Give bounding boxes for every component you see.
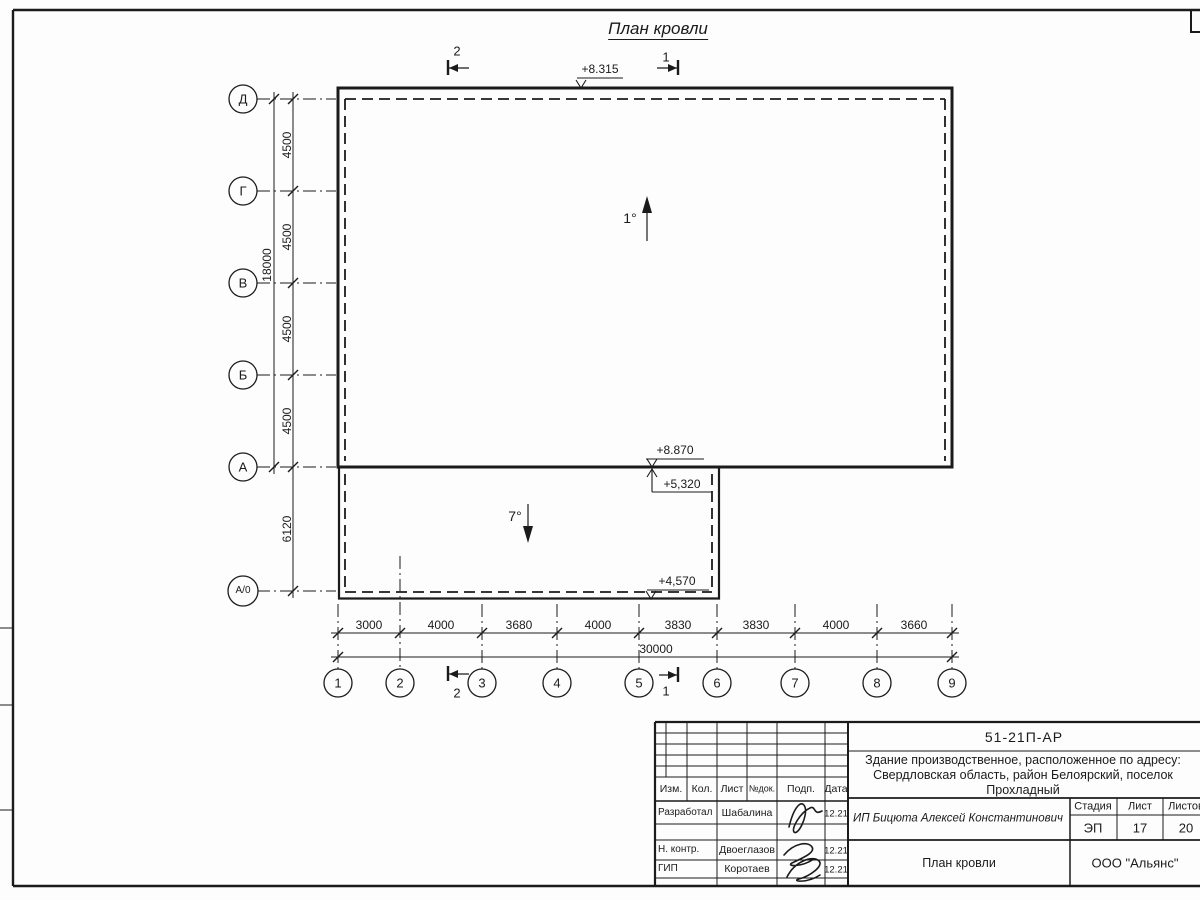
row-axis-label: А/0 bbox=[235, 586, 250, 596]
col-dimension: 4000 bbox=[428, 619, 455, 631]
date-nkontr: 12.21 bbox=[824, 846, 848, 856]
row-dimension-total: 18000 bbox=[261, 248, 273, 281]
col-axis-label: 9 bbox=[948, 677, 955, 690]
date-razrabotal: 12.21 bbox=[824, 809, 848, 819]
elevation-main-roof-edge: +8.870 bbox=[656, 444, 693, 456]
role-nkontr: Н. контр. bbox=[658, 845, 699, 855]
drawing-sheet: План кровли Д Г В Б А А/0 1 2 3 4 5 6 7 … bbox=[0, 0, 1200, 900]
row-dimension: 4500 bbox=[281, 224, 293, 251]
col-dimension-total: 30000 bbox=[639, 643, 672, 655]
client-name: ИП Бицюта Алексей Константинович bbox=[853, 813, 1063, 825]
project-description-line1: Здание производственное, расположенное п… bbox=[865, 754, 1181, 767]
stage-label: Стадия bbox=[1074, 802, 1112, 813]
organization-name: ООО "Альянс" bbox=[1092, 857, 1179, 870]
elevation-annex-roof-top: +5,320 bbox=[663, 478, 700, 490]
col-header-podp: Подп. bbox=[787, 784, 815, 795]
col-header-izm: Изм. bbox=[660, 784, 683, 795]
name-nkontr: Двоеглазов bbox=[719, 845, 775, 856]
date-gip: 12.21 bbox=[824, 865, 848, 875]
slope-label-main: 1° bbox=[623, 211, 636, 225]
col-header-kol: Кол. bbox=[692, 784, 713, 795]
sheet-value: 17 bbox=[1133, 822, 1147, 835]
slope-arrow-main bbox=[642, 196, 652, 241]
main-roof-outline bbox=[338, 88, 952, 467]
row-dimension: 4500 bbox=[281, 408, 293, 435]
sheet-label: Лист bbox=[1128, 802, 1152, 813]
row-dimension: 4500 bbox=[281, 316, 293, 343]
col-dimension: 3830 bbox=[665, 619, 692, 631]
col-axis-label: 8 bbox=[873, 677, 880, 690]
left-margin-dividers bbox=[0, 628, 13, 810]
sheets-label: Листов bbox=[1168, 802, 1200, 813]
dimension-ticks bbox=[269, 94, 957, 662]
section-number-1-bottom: 1 bbox=[662, 685, 669, 698]
slope-arrow-annex bbox=[523, 504, 533, 543]
name-razrabotal: Шабалина bbox=[722, 808, 773, 819]
elevation-main-roof: +8.315 bbox=[581, 63, 618, 75]
col-header-data: Дата bbox=[824, 784, 847, 795]
name-gip: Коротаев bbox=[724, 864, 769, 875]
col-axis-label: 2 bbox=[396, 677, 403, 690]
col-axis-label: 6 bbox=[713, 677, 720, 690]
slope-label-annex: 7° bbox=[508, 509, 521, 523]
signature-strokes bbox=[784, 804, 822, 881]
col-dimension: 3830 bbox=[743, 619, 770, 631]
col-dimension: 3000 bbox=[356, 619, 383, 631]
col-axis-label: 4 bbox=[553, 677, 560, 690]
dimension-lines bbox=[274, 92, 959, 657]
signature-razrabotal bbox=[789, 804, 822, 833]
col-dimension: 3660 bbox=[901, 619, 928, 631]
col-axis-label: 7 bbox=[791, 677, 798, 690]
row-axis-label: Б bbox=[239, 369, 248, 382]
elevation-annex-roof-edge: +4,570 bbox=[658, 575, 695, 587]
project-description-line2: Свердловская область, район Белоярский, … bbox=[873, 769, 1173, 782]
section-mark-1-bottom bbox=[659, 667, 678, 682]
doc-code: 51-21П-АР bbox=[985, 730, 1063, 744]
col-axis-label: 1 bbox=[334, 677, 341, 690]
section-mark-2-top bbox=[448, 60, 469, 75]
col-header-ndoc: №док. bbox=[749, 785, 775, 794]
project-description-line3: Прохладный bbox=[986, 784, 1059, 797]
col-header-list: Лист bbox=[721, 784, 744, 795]
signature-gip bbox=[784, 844, 820, 881]
row-axis-label: Г bbox=[239, 185, 246, 198]
col-dimension: 4000 bbox=[585, 619, 612, 631]
axis-lines bbox=[257, 99, 952, 669]
col-axis-label: 5 bbox=[635, 677, 642, 690]
col-dimension: 3680 bbox=[506, 619, 533, 631]
drawing-title: План кровли bbox=[608, 20, 708, 40]
role-gip: ГИП bbox=[658, 864, 678, 874]
row-axis-label: В bbox=[239, 277, 248, 290]
sheet-name: План кровли bbox=[922, 857, 996, 870]
col-dimension: 4000 bbox=[823, 619, 850, 631]
row-axis-label: А bbox=[239, 461, 248, 474]
stage-value: ЭП bbox=[1084, 822, 1103, 835]
role-razrabotal: Разработал bbox=[658, 808, 712, 818]
row-dimension-annex: 6120 bbox=[281, 516, 293, 543]
main-roof-parapet-dashed bbox=[345, 99, 945, 461]
sheets-value: 20 bbox=[1179, 822, 1193, 835]
elevation-leaders bbox=[576, 78, 712, 599]
section-number-2-bottom: 2 bbox=[453, 687, 460, 700]
section-mark-2-bottom bbox=[448, 666, 469, 681]
section-number-2-top: 2 bbox=[453, 45, 460, 58]
section-number-1-top: 1 bbox=[662, 51, 669, 64]
row-axis-label: Д bbox=[239, 93, 248, 106]
row-dimension: 4500 bbox=[281, 132, 293, 159]
col-axis-label: 3 bbox=[478, 677, 485, 690]
